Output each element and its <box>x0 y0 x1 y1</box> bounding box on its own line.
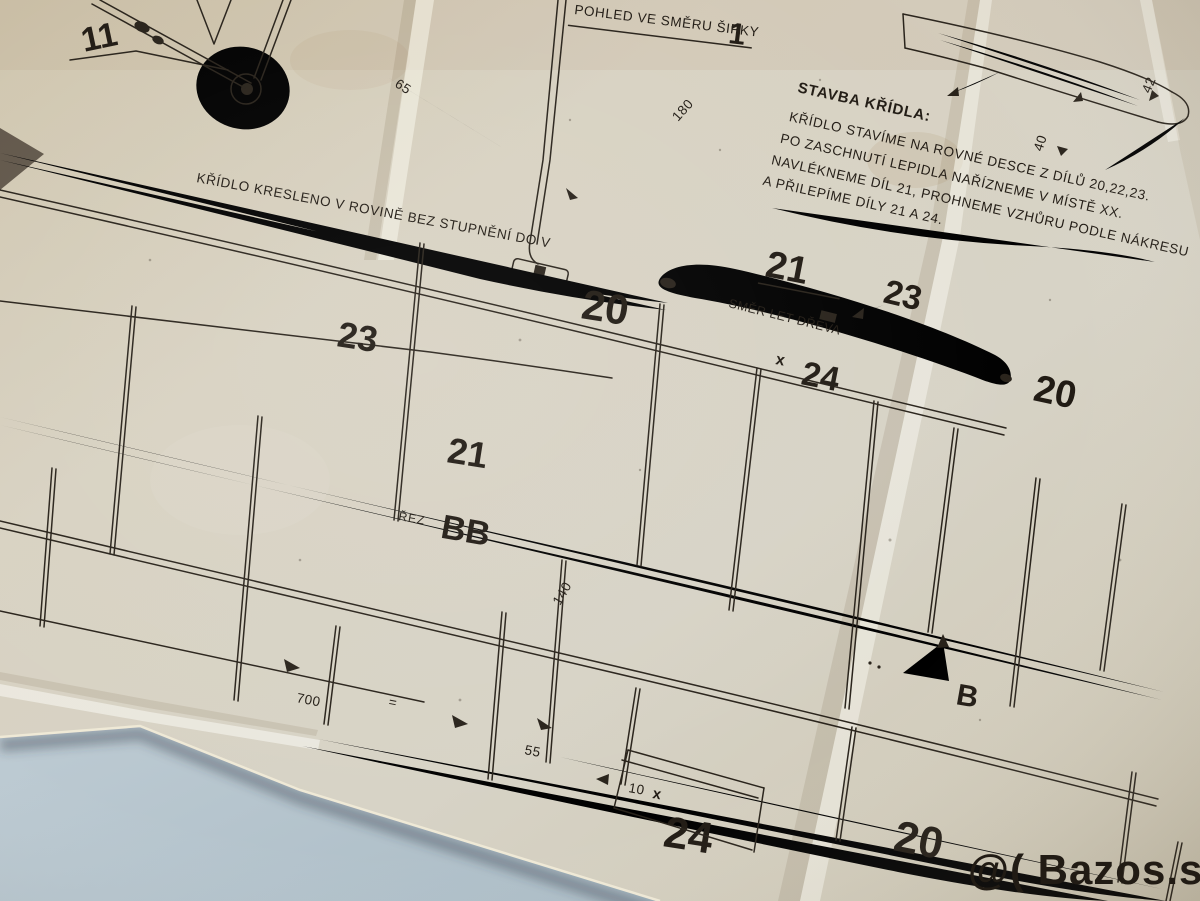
plan-photo-svg: 11 65 180 POHLED VE SMĚRU ŠIPKY 1 STAVBA… <box>0 0 1200 901</box>
watermark-text: @( Bazos.sk <box>968 846 1200 893</box>
photo-of-plan: 11 65 180 POHLED VE SMĚRU ŠIPKY 1 STAVBA… <box>0 0 1200 901</box>
photo-vignette <box>0 0 1200 901</box>
